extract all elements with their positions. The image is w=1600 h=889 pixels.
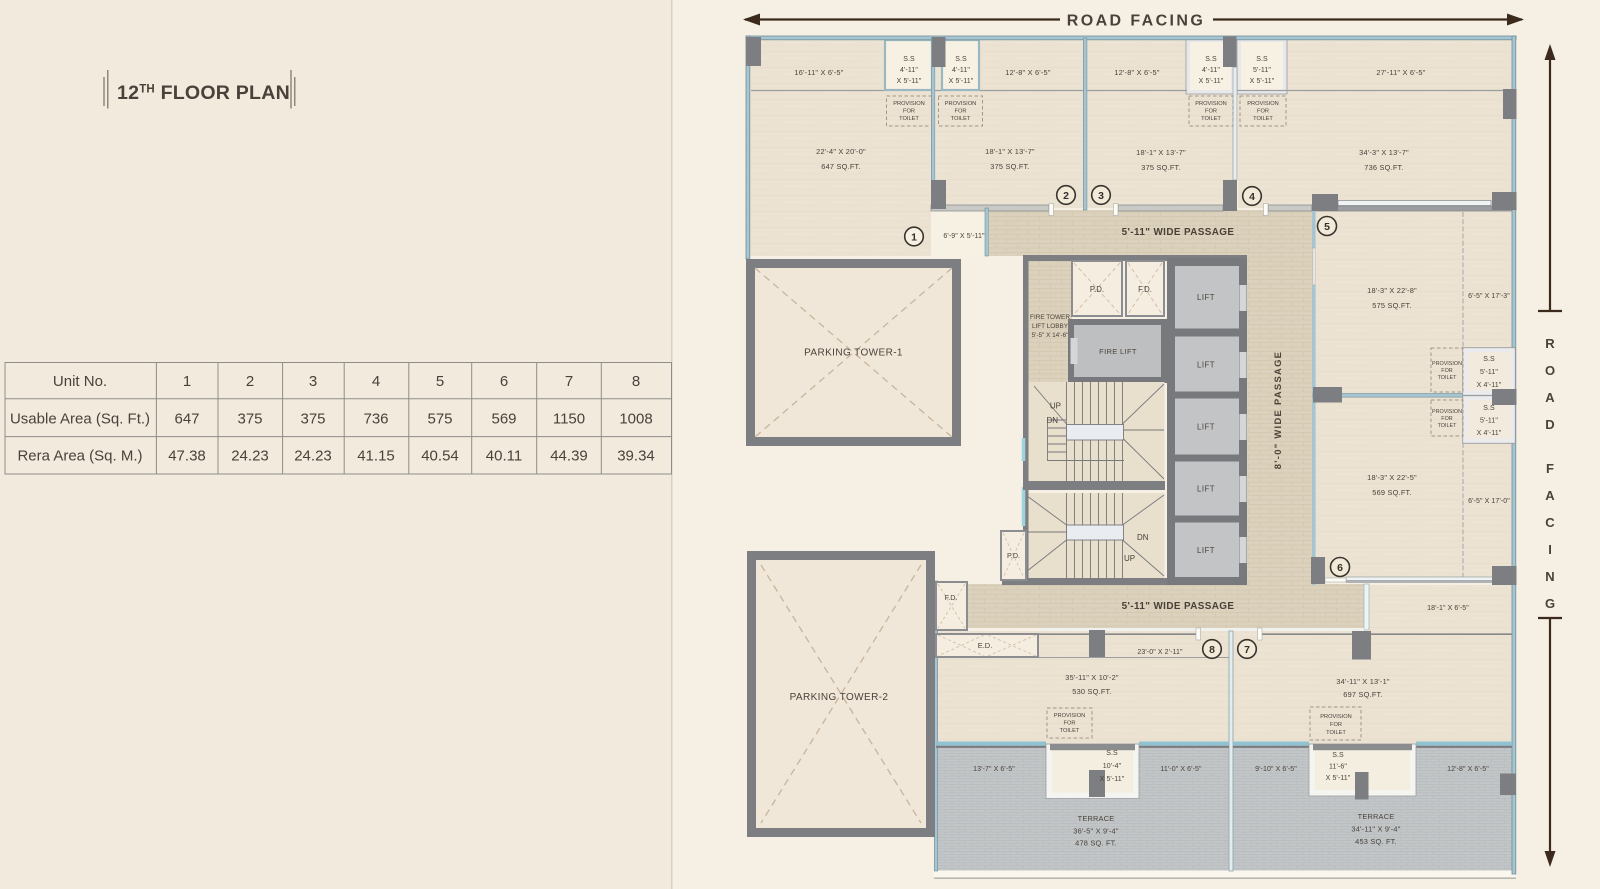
svg-text:40.54: 40.54 xyxy=(421,448,459,465)
svg-text:FOR: FOR xyxy=(1441,416,1452,422)
svg-text:PROVISION: PROVISION xyxy=(1432,409,1462,415)
svg-text:DN: DN xyxy=(1137,533,1149,542)
svg-text:S.S: S.S xyxy=(1256,56,1268,63)
svg-text:8: 8 xyxy=(632,373,640,390)
svg-text:23'-0" X 2'-11": 23'-0" X 2'-11" xyxy=(1137,649,1183,656)
svg-text:S.S: S.S xyxy=(1483,356,1495,363)
svg-text:X 5'-11": X 5'-11" xyxy=(1100,776,1125,783)
svg-text:FOR: FOR xyxy=(903,109,915,115)
svg-text:478 SQ. FT.: 478 SQ. FT. xyxy=(1075,839,1117,848)
svg-text:F: F xyxy=(1546,461,1554,476)
svg-text:10'-4": 10'-4" xyxy=(1103,763,1122,770)
svg-text:TERRACE: TERRACE xyxy=(1078,814,1115,823)
svg-text:5'-5" X 14'-6": 5'-5" X 14'-6" xyxy=(1032,332,1069,339)
svg-text:34'-11" X 13'-1": 34'-11" X 13'-1" xyxy=(1336,677,1390,686)
svg-text:18'-1" X 6'-5": 18'-1" X 6'-5" xyxy=(1427,605,1469,612)
svg-text:UP: UP xyxy=(1124,554,1135,563)
svg-text:736 SQ.FT.: 736 SQ.FT. xyxy=(1364,163,1403,172)
svg-text:X 4'-11": X 4'-11" xyxy=(1477,382,1502,389)
svg-text:569 SQ.FT.: 569 SQ.FT. xyxy=(1372,488,1411,497)
svg-text:O: O xyxy=(1545,363,1555,378)
svg-text:44.39: 44.39 xyxy=(550,448,588,465)
svg-text:1: 1 xyxy=(911,232,917,244)
svg-text:5'-11": 5'-11" xyxy=(1480,369,1498,376)
svg-text:5'-11": 5'-11" xyxy=(1253,67,1271,74)
svg-text:569: 569 xyxy=(491,411,516,428)
svg-text:TOILET: TOILET xyxy=(1438,375,1457,381)
svg-text:FOR: FOR xyxy=(1205,109,1217,115)
svg-text:S.S: S.S xyxy=(1483,405,1495,412)
svg-text:TOILET: TOILET xyxy=(1253,116,1273,122)
svg-text:575: 575 xyxy=(427,411,452,428)
svg-text:39.34: 39.34 xyxy=(617,448,655,465)
svg-text:8: 8 xyxy=(1209,644,1215,656)
svg-text:7: 7 xyxy=(565,373,573,390)
svg-text:4'-11": 4'-11" xyxy=(1202,67,1220,74)
svg-text:S.S: S.S xyxy=(1332,752,1344,759)
svg-text:E.D.: E.D. xyxy=(978,641,993,650)
svg-text:6'-5" X 17'-0": 6'-5" X 17'-0" xyxy=(1468,498,1510,505)
svg-text:P.D.: P.D. xyxy=(1007,551,1020,560)
svg-text:18'-3" X 22'-8": 18'-3" X 22'-8" xyxy=(1367,286,1417,295)
svg-text:P.D.: P.D. xyxy=(1090,285,1104,294)
svg-text:22'-4" X 20'-0": 22'-4" X 20'-0" xyxy=(816,147,866,156)
svg-text:647 SQ.FT.: 647 SQ.FT. xyxy=(821,162,860,171)
svg-text:5'-11" WIDE PASSAGE: 5'-11" WIDE PASSAGE xyxy=(1122,601,1235,612)
svg-text:5: 5 xyxy=(436,373,444,390)
svg-text:PROVISION: PROVISION xyxy=(1195,101,1227,107)
svg-text:LIFT: LIFT xyxy=(1197,485,1215,494)
svg-text:S.S: S.S xyxy=(1106,750,1118,757)
svg-text:TOILET: TOILET xyxy=(1438,423,1457,429)
svg-text:375 SQ.FT.: 375 SQ.FT. xyxy=(1141,163,1180,172)
svg-text:FOR: FOR xyxy=(1063,721,1075,727)
svg-text:453 SQ. FT.: 453 SQ. FT. xyxy=(1355,837,1397,846)
svg-text:S.S: S.S xyxy=(955,56,967,63)
svg-text:ROAD FACING: ROAD FACING xyxy=(1067,13,1205,30)
svg-text:6: 6 xyxy=(1337,562,1343,574)
svg-text:1: 1 xyxy=(183,373,191,390)
svg-text:12'-8" X 6'-5": 12'-8" X 6'-5" xyxy=(1114,68,1160,77)
svg-text:4: 4 xyxy=(372,373,380,390)
svg-text:12'-8" X 6'-5": 12'-8" X 6'-5" xyxy=(1005,68,1051,77)
svg-text:TOILET: TOILET xyxy=(951,116,971,122)
svg-text:2: 2 xyxy=(1063,190,1069,202)
svg-text:6: 6 xyxy=(500,373,508,390)
svg-text:I: I xyxy=(1548,542,1552,557)
svg-text:PARKING TOWER-2: PARKING TOWER-2 xyxy=(790,692,889,703)
svg-text:A: A xyxy=(1545,488,1555,503)
svg-text:18'-1" X 13'-7": 18'-1" X 13'-7" xyxy=(1136,148,1186,157)
svg-text:LIFT: LIFT xyxy=(1197,293,1215,302)
svg-text:PROVISION: PROVISION xyxy=(1054,713,1086,719)
svg-text:34'-3" X 13'-7": 34'-3" X 13'-7" xyxy=(1359,148,1409,157)
svg-text:FIRE TOWER: FIRE TOWER xyxy=(1030,314,1070,321)
svg-text:UP: UP xyxy=(1050,402,1061,411)
svg-text:4'-11": 4'-11" xyxy=(952,67,970,74)
svg-text:5: 5 xyxy=(1324,221,1330,233)
svg-text:36'-5" X 9'-4": 36'-5" X 9'-4" xyxy=(1073,827,1119,836)
svg-text:PROVISION: PROVISION xyxy=(1320,714,1352,720)
svg-text:LIFT: LIFT xyxy=(1197,361,1215,370)
svg-text:3: 3 xyxy=(309,373,317,390)
svg-text:5'-11" WIDE PASSAGE: 5'-11" WIDE PASSAGE xyxy=(1122,227,1235,238)
svg-text:PARKING TOWER-1: PARKING TOWER-1 xyxy=(804,348,903,359)
svg-text:13'-7" X 6'-5": 13'-7" X 6'-5" xyxy=(973,766,1015,773)
svg-text:C: C xyxy=(1545,515,1555,530)
svg-text:FOR: FOR xyxy=(954,109,966,115)
svg-text:LIFT LOBBY: LIFT LOBBY xyxy=(1032,323,1069,330)
svg-text:34'-11" X 9'-4": 34'-11" X 9'-4" xyxy=(1351,825,1400,834)
svg-text:3: 3 xyxy=(1098,190,1104,202)
svg-text:F.D.: F.D. xyxy=(1138,285,1152,294)
svg-text:11'-6": 11'-6" xyxy=(1329,764,1347,771)
svg-text:47.38: 47.38 xyxy=(168,448,206,465)
svg-text:41.15: 41.15 xyxy=(357,448,395,465)
svg-text:X 5'-11": X 5'-11" xyxy=(1199,78,1224,85)
svg-text:FIRE LIFT: FIRE LIFT xyxy=(1099,347,1137,356)
svg-text:11'-0" X 6'-5": 11'-0" X 6'-5" xyxy=(1160,766,1202,773)
svg-text:18'-1" X 13'-7": 18'-1" X 13'-7" xyxy=(985,147,1035,156)
svg-text:D: D xyxy=(1545,417,1554,432)
svg-text:X 5'-11": X 5'-11" xyxy=(949,78,974,85)
svg-text:Unit No.: Unit No. xyxy=(53,373,107,390)
svg-text:5'-11": 5'-11" xyxy=(1480,418,1498,425)
svg-text:16'-11" X 6'-5": 16'-11" X 6'-5" xyxy=(794,68,843,77)
svg-text:F.D.: F.D. xyxy=(945,593,958,602)
svg-text:S.S: S.S xyxy=(903,56,915,63)
svg-text:A: A xyxy=(1545,390,1555,405)
svg-text:DN: DN xyxy=(1046,416,1058,425)
svg-text:4'-11": 4'-11" xyxy=(900,67,918,74)
svg-text:TOILET: TOILET xyxy=(1201,116,1221,122)
svg-text:PROVISION: PROVISION xyxy=(1247,101,1279,107)
svg-text:Rera Area (Sq. M.): Rera Area (Sq. M.) xyxy=(17,448,142,465)
svg-text:X 5'-11": X 5'-11" xyxy=(1250,78,1275,85)
svg-text:TOILET: TOILET xyxy=(899,116,919,122)
svg-text:575 SQ.FT.: 575 SQ.FT. xyxy=(1372,301,1411,310)
svg-text:4: 4 xyxy=(1249,191,1255,203)
svg-text:FOR: FOR xyxy=(1441,368,1452,374)
svg-text:7: 7 xyxy=(1244,644,1250,656)
svg-text:PROVISION: PROVISION xyxy=(893,101,925,107)
svg-text:S.S: S.S xyxy=(1205,56,1217,63)
svg-text:35'-11" X 10'-2": 35'-11" X 10'-2" xyxy=(1065,673,1119,682)
svg-text:6'-9" X 5'-11": 6'-9" X 5'-11" xyxy=(943,233,985,240)
svg-text:1008: 1008 xyxy=(619,411,652,428)
svg-text:647: 647 xyxy=(174,411,199,428)
svg-text:18'-3" X 22'-5": 18'-3" X 22'-5" xyxy=(1367,473,1417,482)
svg-text:TERRACE: TERRACE xyxy=(1358,812,1395,821)
svg-text:2: 2 xyxy=(246,373,254,390)
svg-text:PROVISION: PROVISION xyxy=(1432,361,1462,367)
svg-text:1150: 1150 xyxy=(553,411,585,428)
svg-text:375 SQ.FT.: 375 SQ.FT. xyxy=(990,162,1029,171)
svg-text:LIFT: LIFT xyxy=(1197,423,1215,432)
svg-text:FOR: FOR xyxy=(1257,109,1269,115)
svg-text:24.23: 24.23 xyxy=(294,448,332,465)
svg-text:9'-10" X 6'-5": 9'-10" X 6'-5" xyxy=(1255,766,1297,773)
svg-text:40.11: 40.11 xyxy=(486,448,522,465)
svg-text:375: 375 xyxy=(300,411,325,428)
svg-text:FOR: FOR xyxy=(1330,722,1342,728)
svg-text:TOILET: TOILET xyxy=(1326,730,1346,736)
svg-text:X 4'-11": X 4'-11" xyxy=(1477,430,1502,437)
svg-text:TOILET: TOILET xyxy=(1060,728,1080,734)
svg-text:LIFT: LIFT xyxy=(1197,546,1215,555)
svg-text:736: 736 xyxy=(363,411,388,428)
svg-text:R: R xyxy=(1545,336,1555,351)
svg-text:27'-11" X 6'-5": 27'-11" X 6'-5" xyxy=(1376,68,1425,77)
svg-text:530 SQ.FT.: 530 SQ.FT. xyxy=(1072,687,1111,696)
svg-text:24.23: 24.23 xyxy=(231,448,269,465)
svg-text:G: G xyxy=(1545,596,1555,611)
svg-text:8'-0" WIDE PASSAGE: 8'-0" WIDE PASSAGE xyxy=(1272,351,1283,469)
svg-text:697 SQ.FT.: 697 SQ.FT. xyxy=(1343,690,1382,699)
svg-text:12'-8" X 6'-5": 12'-8" X 6'-5" xyxy=(1447,766,1489,773)
svg-text:X 5'-11": X 5'-11" xyxy=(897,78,922,85)
svg-text:X 5'-11": X 5'-11" xyxy=(1326,775,1351,782)
svg-text:375: 375 xyxy=(237,411,262,428)
svg-text:Usable Area (Sq. Ft.): Usable Area (Sq. Ft.) xyxy=(10,411,150,428)
svg-text:6'-5" X 17'-3": 6'-5" X 17'-3" xyxy=(1468,293,1510,300)
svg-text:N: N xyxy=(1545,569,1554,584)
svg-text:PROVISION: PROVISION xyxy=(945,101,977,107)
